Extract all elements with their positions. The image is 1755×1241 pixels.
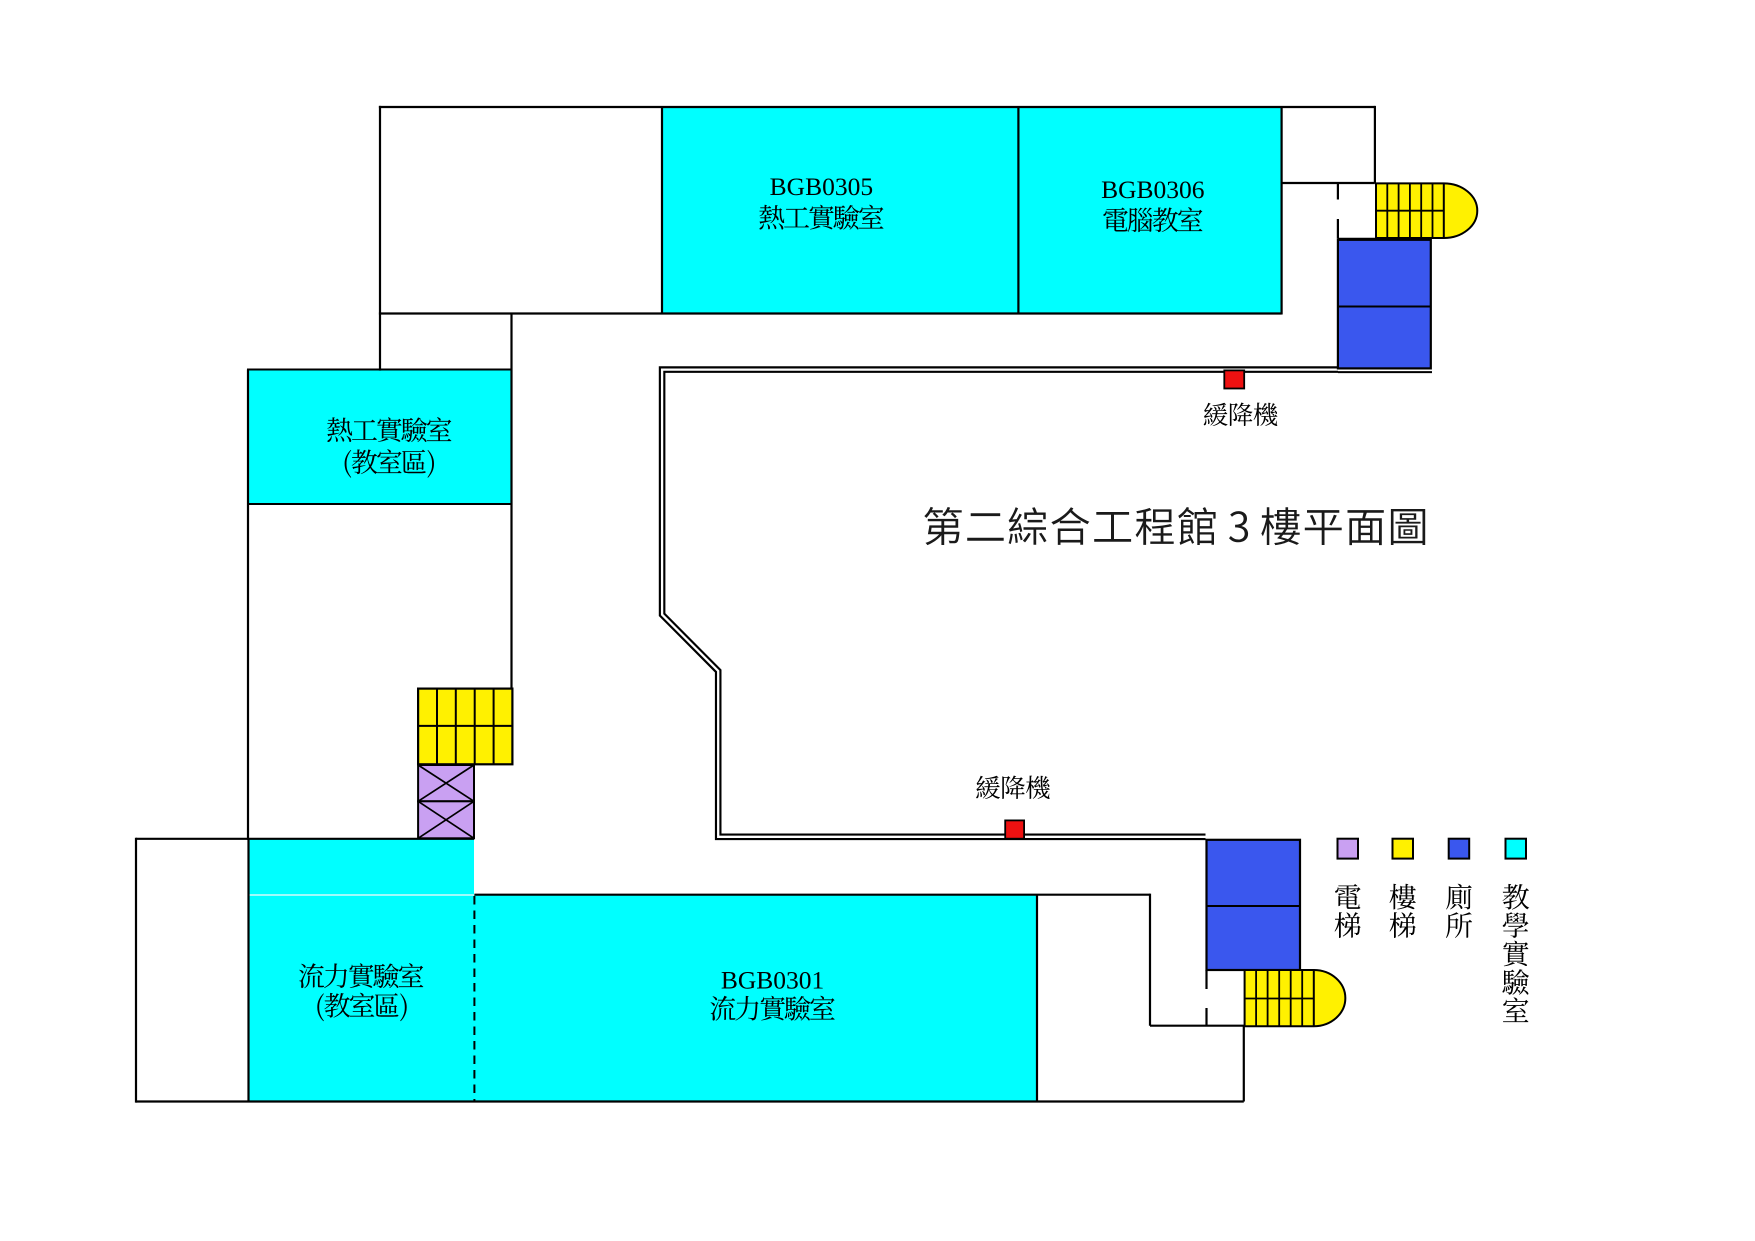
svg-text:BGB0301: BGB0301 — [721, 966, 824, 995]
svg-text:BGB0305: BGB0305 — [770, 172, 873, 201]
svg-text:BGB0306: BGB0306 — [1101, 175, 1204, 204]
